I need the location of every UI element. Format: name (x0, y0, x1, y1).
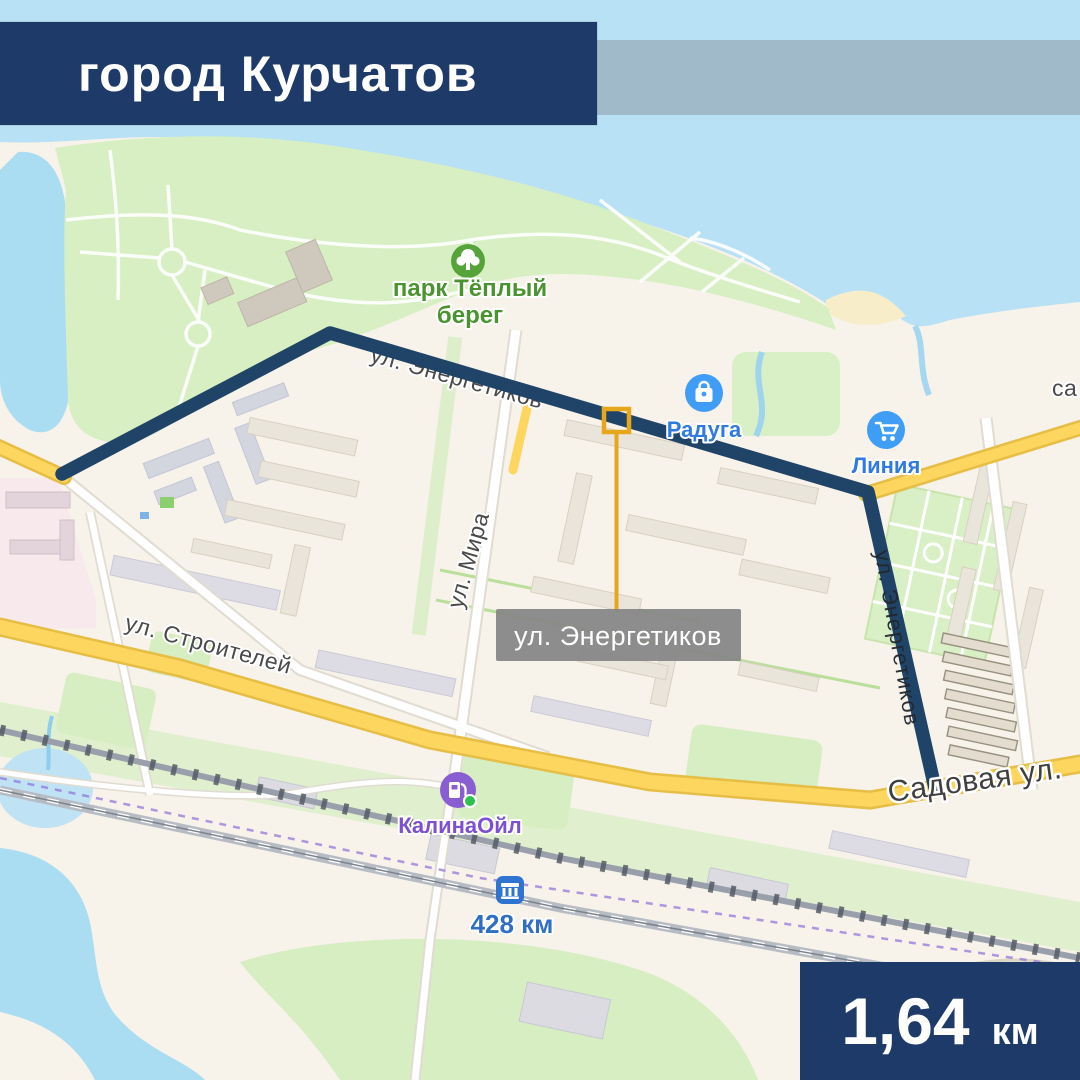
poi-kalinaoil-label: КалинаОйл (398, 813, 522, 838)
train-station-icon-glyph (501, 883, 519, 899)
street-label-partial: са (1052, 375, 1077, 401)
distance-unit: км (992, 1011, 1039, 1054)
page-title: город Курчатов (0, 45, 478, 103)
status-dot (464, 795, 476, 807)
distance-badge: 1,64 км (800, 962, 1080, 1080)
small-blue-lot (140, 512, 149, 519)
poi-station-label: 428 км (471, 909, 554, 939)
lawn (732, 352, 840, 436)
map-canvas[interactable]: ул. Энергетиков ул. Энергетиков ул. Мира… (0, 0, 1080, 1080)
poi-raduga-label: Радуга (667, 417, 742, 442)
banner-shadow-band (597, 40, 1080, 115)
street-tooltip: ул. Энергетиков (496, 609, 741, 661)
map-screenshot: ул. Энергетиков ул. Энергетиков ул. Мира… (0, 0, 1080, 1080)
water-lake (0, 152, 72, 432)
poi-liniya-label: Линия (852, 453, 921, 478)
tooltip-label: ул. Энергетиков (514, 621, 722, 651)
poi-park-label-1: парк Тёплый (393, 275, 547, 302)
distance-value: 1,64 (841, 962, 969, 1080)
shopping-cart-icon (867, 411, 905, 449)
title-banner: город Курчатов (0, 22, 597, 125)
poi-park-label-2: берег (437, 302, 503, 329)
small-green-lot (160, 497, 174, 508)
